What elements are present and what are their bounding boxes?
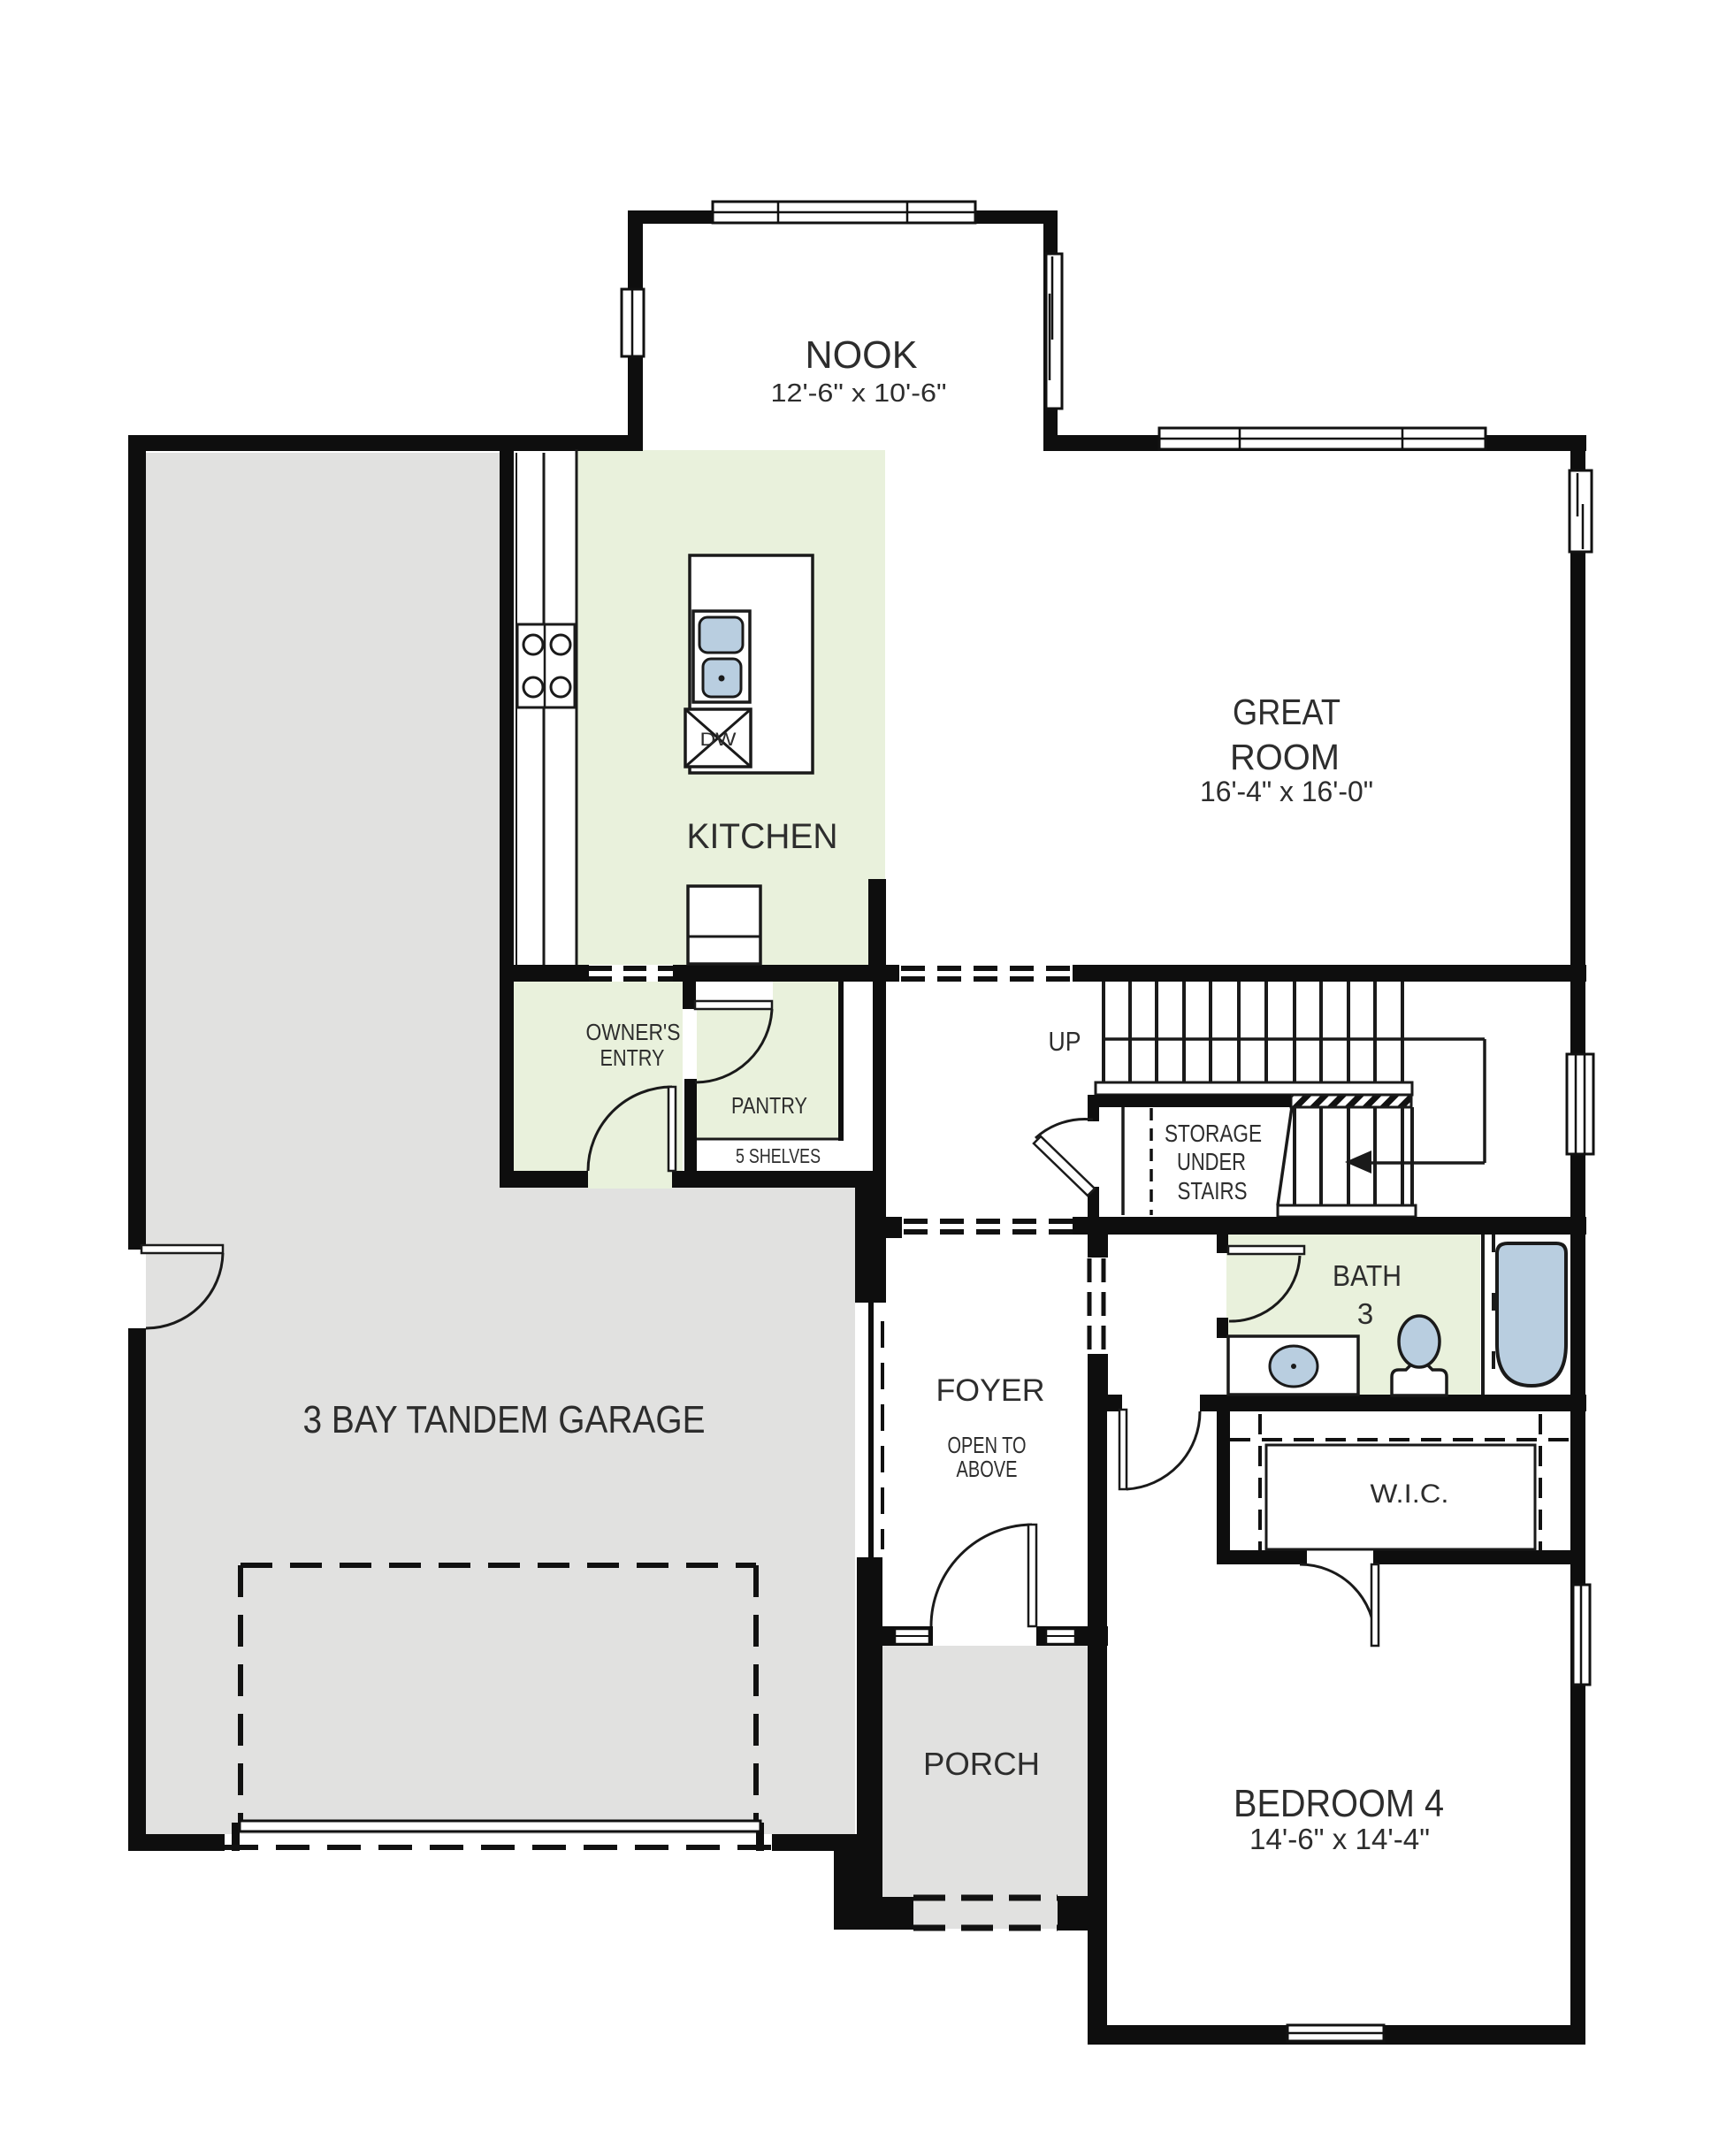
svg-text:BATH: BATH bbox=[1333, 1259, 1402, 1292]
svg-text:3: 3 bbox=[1357, 1297, 1373, 1330]
svg-text:PANTRY: PANTRY bbox=[731, 1092, 807, 1119]
svg-text:KITCHEN: KITCHEN bbox=[687, 817, 838, 856]
svg-text:3 BAY TANDEM GARAGE: 3 BAY TANDEM GARAGE bbox=[303, 1398, 706, 1441]
svg-text:ROOM: ROOM bbox=[1230, 737, 1340, 777]
svg-text:UNDER: UNDER bbox=[1177, 1148, 1246, 1175]
svg-text:NOOK: NOOK bbox=[806, 333, 918, 377]
svg-text:ABOVE: ABOVE bbox=[957, 1456, 1018, 1482]
svg-text:BEDROOM 4: BEDROOM 4 bbox=[1234, 1782, 1444, 1825]
svg-text:FOYER: FOYER bbox=[936, 1373, 1045, 1408]
svg-text:ENTRY: ENTRY bbox=[600, 1044, 665, 1071]
svg-text:5 SHELVES: 5 SHELVES bbox=[736, 1144, 821, 1167]
svg-text:16'-4" x 16'-0": 16'-4" x 16'-0" bbox=[1200, 776, 1373, 807]
svg-text:UP: UP bbox=[1049, 1026, 1081, 1057]
svg-text:DW: DW bbox=[700, 730, 737, 750]
svg-text:STAIRS: STAIRS bbox=[1178, 1177, 1248, 1204]
svg-text:14'-6" x 14'-4": 14'-6" x 14'-4" bbox=[1249, 1823, 1430, 1855]
svg-text:12'-6" x 10'-6": 12'-6" x 10'-6" bbox=[771, 379, 947, 408]
svg-text:OWNER'S: OWNER'S bbox=[586, 1019, 681, 1045]
svg-text:PORCH: PORCH bbox=[923, 1746, 1040, 1782]
svg-text:OPEN TO: OPEN TO bbox=[948, 1432, 1027, 1458]
svg-text:W.I.C.: W.I.C. bbox=[1371, 1479, 1449, 1509]
svg-text:STORAGE: STORAGE bbox=[1165, 1120, 1262, 1147]
svg-text:GREAT: GREAT bbox=[1233, 692, 1341, 732]
